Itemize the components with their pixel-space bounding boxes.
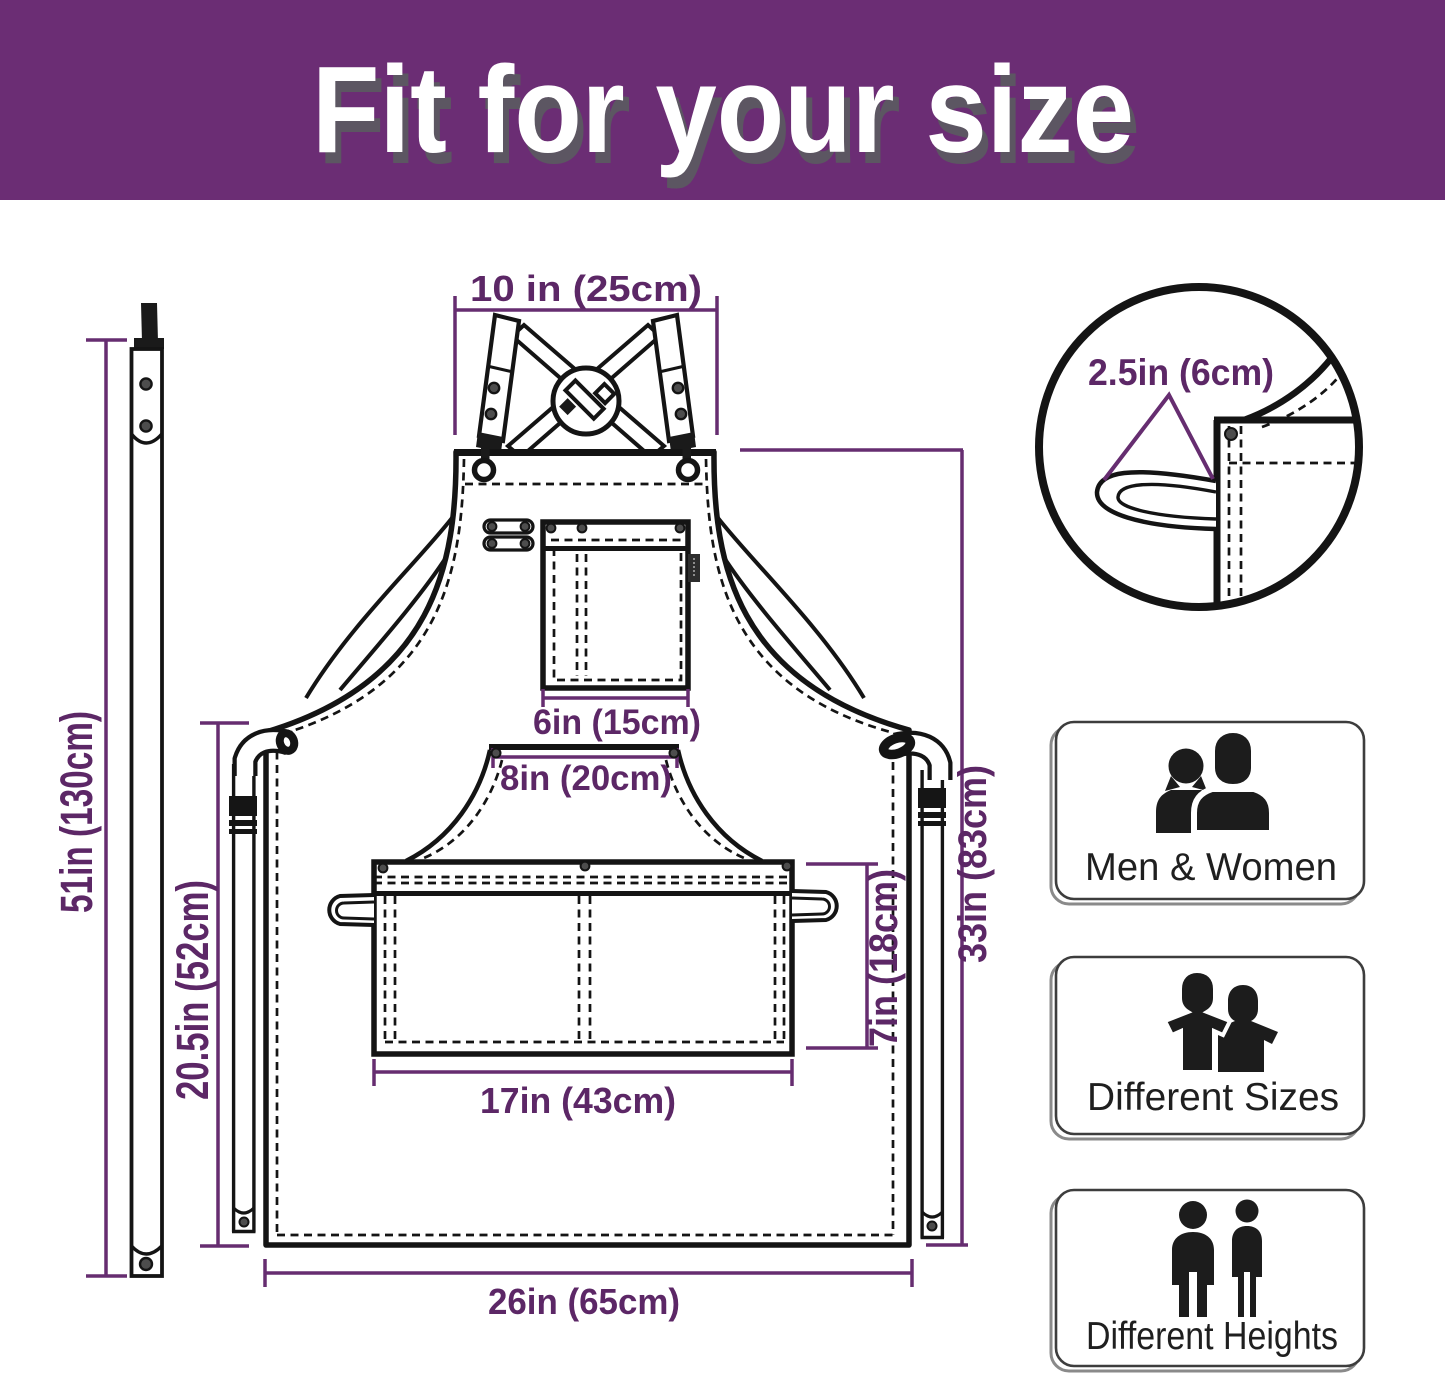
svg-text:17in (43cm): 17in (43cm) xyxy=(480,1080,676,1121)
svg-text:Fit for your size: Fit for your size xyxy=(312,42,1134,179)
svg-text:2.5in (6cm): 2.5in (6cm) xyxy=(1088,352,1274,393)
svg-text:10 in (25cm): 10 in (25cm) xyxy=(470,268,702,309)
svg-text:Men & Women: Men & Women xyxy=(1085,846,1337,889)
svg-text:7in (18cm): 7in (18cm) xyxy=(862,869,906,1047)
svg-text:51in (130cm): 51in (130cm) xyxy=(51,711,102,913)
svg-text:Different Sizes: Different Sizes xyxy=(1087,1076,1339,1119)
svg-text:8in (20cm): 8in (20cm) xyxy=(500,759,672,798)
svg-text:6in (15cm): 6in (15cm) xyxy=(533,703,701,742)
svg-text:26in (65cm): 26in (65cm) xyxy=(488,1281,680,1322)
svg-text:33in (83cm): 33in (83cm) xyxy=(951,765,995,963)
svg-text:20.5in (52cm): 20.5in (52cm) xyxy=(167,880,218,1100)
svg-text:Different Heights: Different Heights xyxy=(1086,1315,1338,1358)
